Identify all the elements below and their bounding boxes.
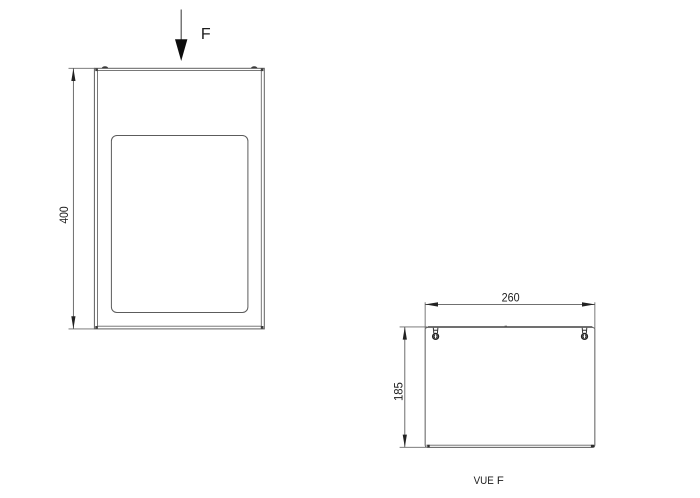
svg-text:VUE: VUE	[474, 475, 495, 487]
svg-text:185: 185	[391, 382, 405, 401]
svg-text:260: 260	[502, 291, 520, 305]
svg-text:400: 400	[57, 206, 71, 223]
svg-text:F: F	[201, 26, 211, 43]
svg-text:F: F	[497, 475, 504, 487]
